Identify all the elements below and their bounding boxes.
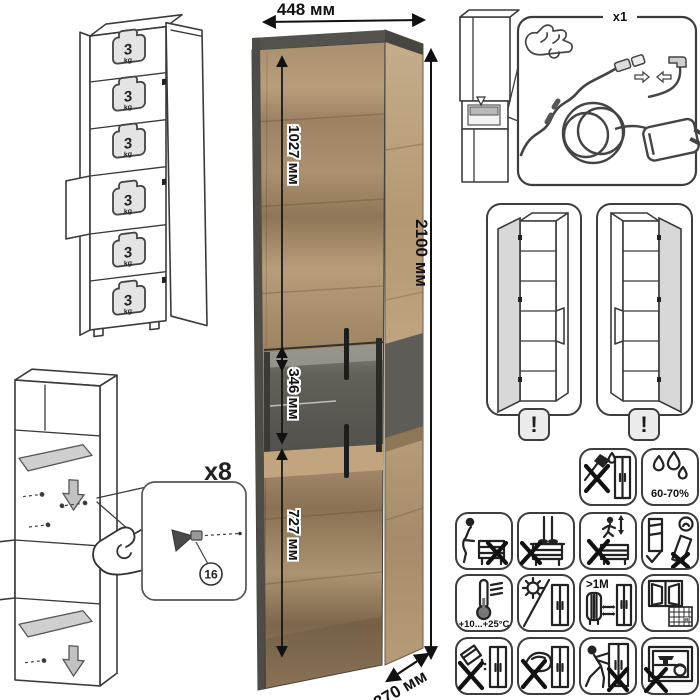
led-kit-count: x1 [613,9,627,24]
dim-width: 448 мм [264,0,424,22]
furniture-spec-sheet: { "main_dimensions": { "width_label": "4… [0,0,700,700]
care-icon-no-standing [517,512,575,570]
care-icon-heat-distance: >1М [579,574,637,632]
care-icon-temperature: +10...+25°C [455,574,513,632]
load-diagram: 3 kg 3 kg 3 kg 3 kg 3 kg 3 kg [52,6,252,351]
care-icon-ventilate: 21 [641,574,699,632]
fastener-callout [142,482,246,600]
calendar-glyph: 21 [669,607,692,626]
carry-upright-icon [643,514,697,568]
ventilate-room-icon: 21 [643,576,697,630]
svg-text:kg: kg [124,57,132,65]
svg-text:21: 21 [684,618,690,623]
warning-mark: ! [530,412,537,438]
product-render: 448 мм 2100 мм 1027 мм 346 мм 727 мм 370… [240,0,460,700]
variant-right-door-panel [596,203,693,416]
led-cabinet-drawing [460,10,519,182]
upper-door-handle [344,328,349,380]
no-dragging-icon [581,639,635,693]
care-icon-no-heavy-objects [641,637,699,695]
care-icon-no-sharp-tools [579,448,637,506]
no-standing-icon [519,514,573,568]
svg-text:2100 мм: 2100 мм [412,219,431,287]
temperature-range-icon: +10...+25°C [457,576,511,630]
variant-left-door-panel [486,203,582,416]
assembly-carcass [0,366,117,687]
variant-left-cabinet [488,205,580,414]
assembly-detail: x8 16 [0,352,280,700]
svg-text:kg: kg [124,260,132,268]
svg-text:60-70%: 60-70% [651,488,689,500]
care-icon-humidity: 60-70% [641,448,699,506]
svg-text:448 мм: 448 мм [277,0,335,19]
svg-text:>1М: >1М [586,579,609,591]
care-icon-no-jumping [579,512,637,570]
svg-text:kg: kg [124,104,132,112]
care-icon-no-dragging [579,637,637,695]
no-direct-sunlight-icon [519,576,573,630]
lower-door-handle [344,424,349,478]
no-wet-cloth-icon [519,639,573,693]
part-number: 16 [204,568,218,582]
svg-text:kg: kg [124,208,132,216]
no-jumping-icon [581,514,635,568]
svg-text:1027 мм: 1027 мм [285,125,302,185]
led-kit-section: x1 [455,5,700,190]
svg-text:kg: kg [124,151,132,159]
humidity-60-70-icon: 60-70% [643,450,697,504]
care-icon-carry-upright [641,512,699,570]
keep-distance-from-heat-icon: >1М [581,576,635,630]
care-icon-no-sunlight [517,574,575,632]
no-sitting-icon [457,514,511,568]
warning-badge-right: ! [628,408,660,441]
care-icon-grid: 60-70% [455,448,700,698]
svg-text:346 мм: 346 мм [285,368,302,419]
care-icon-no-abrasive [455,637,513,695]
cabinet-body [252,30,423,690]
no-abrasive-cleaners-icon [457,639,511,693]
warning-mark: ! [640,412,647,438]
svg-text:727 мм: 727 мм [285,509,302,560]
svg-text:+10...+25°C: +10...+25°C [459,619,510,630]
fastener-count: x8 [204,458,232,486]
load-diagram-cabinet: 3 kg 3 kg 3 kg 3 kg 3 kg 3 kg [66,12,207,343]
no-sharp-tools-icon [581,450,635,504]
svg-text:kg: kg [124,308,132,316]
variant-right-cabinet [598,205,691,414]
warning-badge-left: ! [518,408,550,441]
no-heavy-objects-icon [643,639,697,693]
care-icon-no-wet-cloth [517,637,575,695]
care-icon-no-sitting [455,512,513,570]
